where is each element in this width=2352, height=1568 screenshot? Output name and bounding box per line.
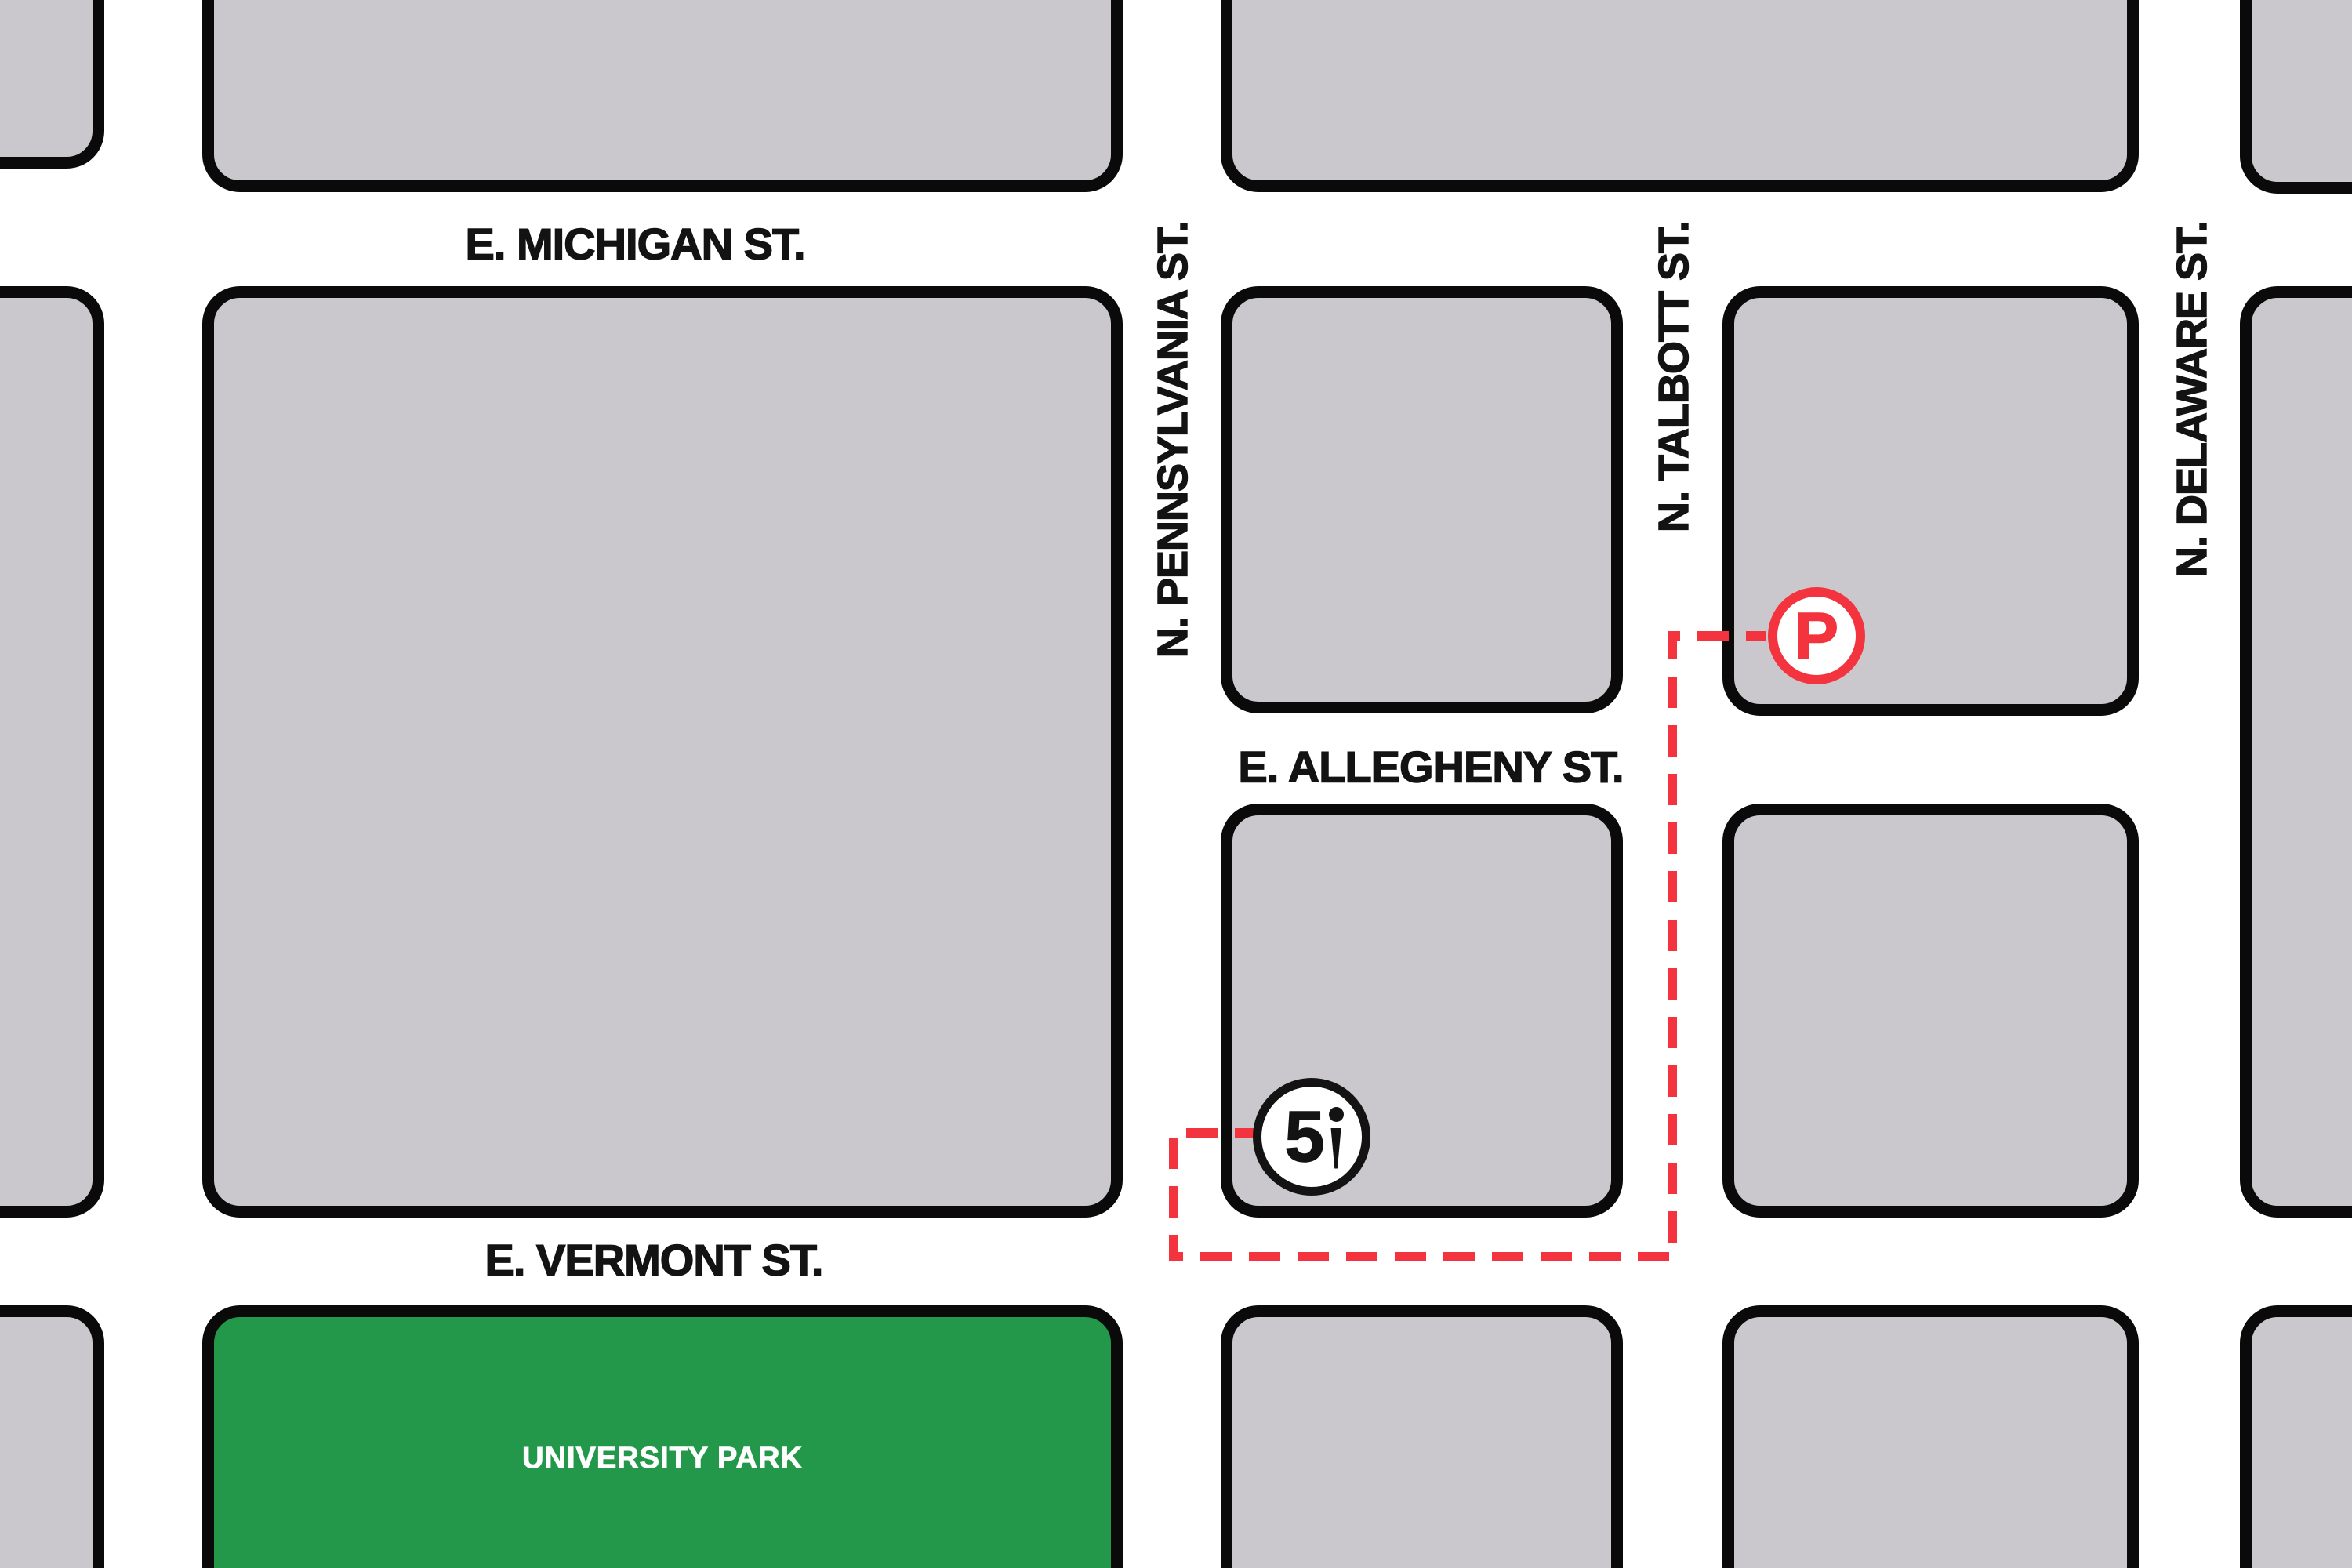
street-labels-layer: E. MICHIGAN ST.E. ALLEGHENY ST.E. VERMON… [0, 0, 2352, 1568]
street-label-e-vermont-st: E. VERMONT ST. [485, 1235, 823, 1286]
five-iron-location-marker: 5 [1253, 1078, 1370, 1196]
golf-tee-stem [1330, 1128, 1342, 1169]
parking-letter: P [1795, 603, 1838, 669]
five-iron-number: 5 [1284, 1101, 1324, 1173]
street-label-e-allegheny-st: E. ALLEGHENY ST. [1238, 742, 1623, 793]
street-label-n-delaware-st: N. DELAWARE ST. [2168, 222, 2216, 577]
golf-tee-icon [1329, 1107, 1344, 1169]
map-stage: UNIVERSITY PARK E. MICHIGAN ST.E. ALLEGH… [0, 0, 2352, 1568]
street-label-n-talbott-st: N. TALBOTT ST. [1650, 222, 1698, 532]
street-label-e-michigan-st: E. MICHIGAN ST. [465, 219, 804, 270]
parking-marker: P [1768, 587, 1865, 684]
street-label-n-pennsylvania-st: N. PENNSYLVANIA ST. [1149, 222, 1197, 658]
golf-tee-dot [1329, 1107, 1344, 1122]
